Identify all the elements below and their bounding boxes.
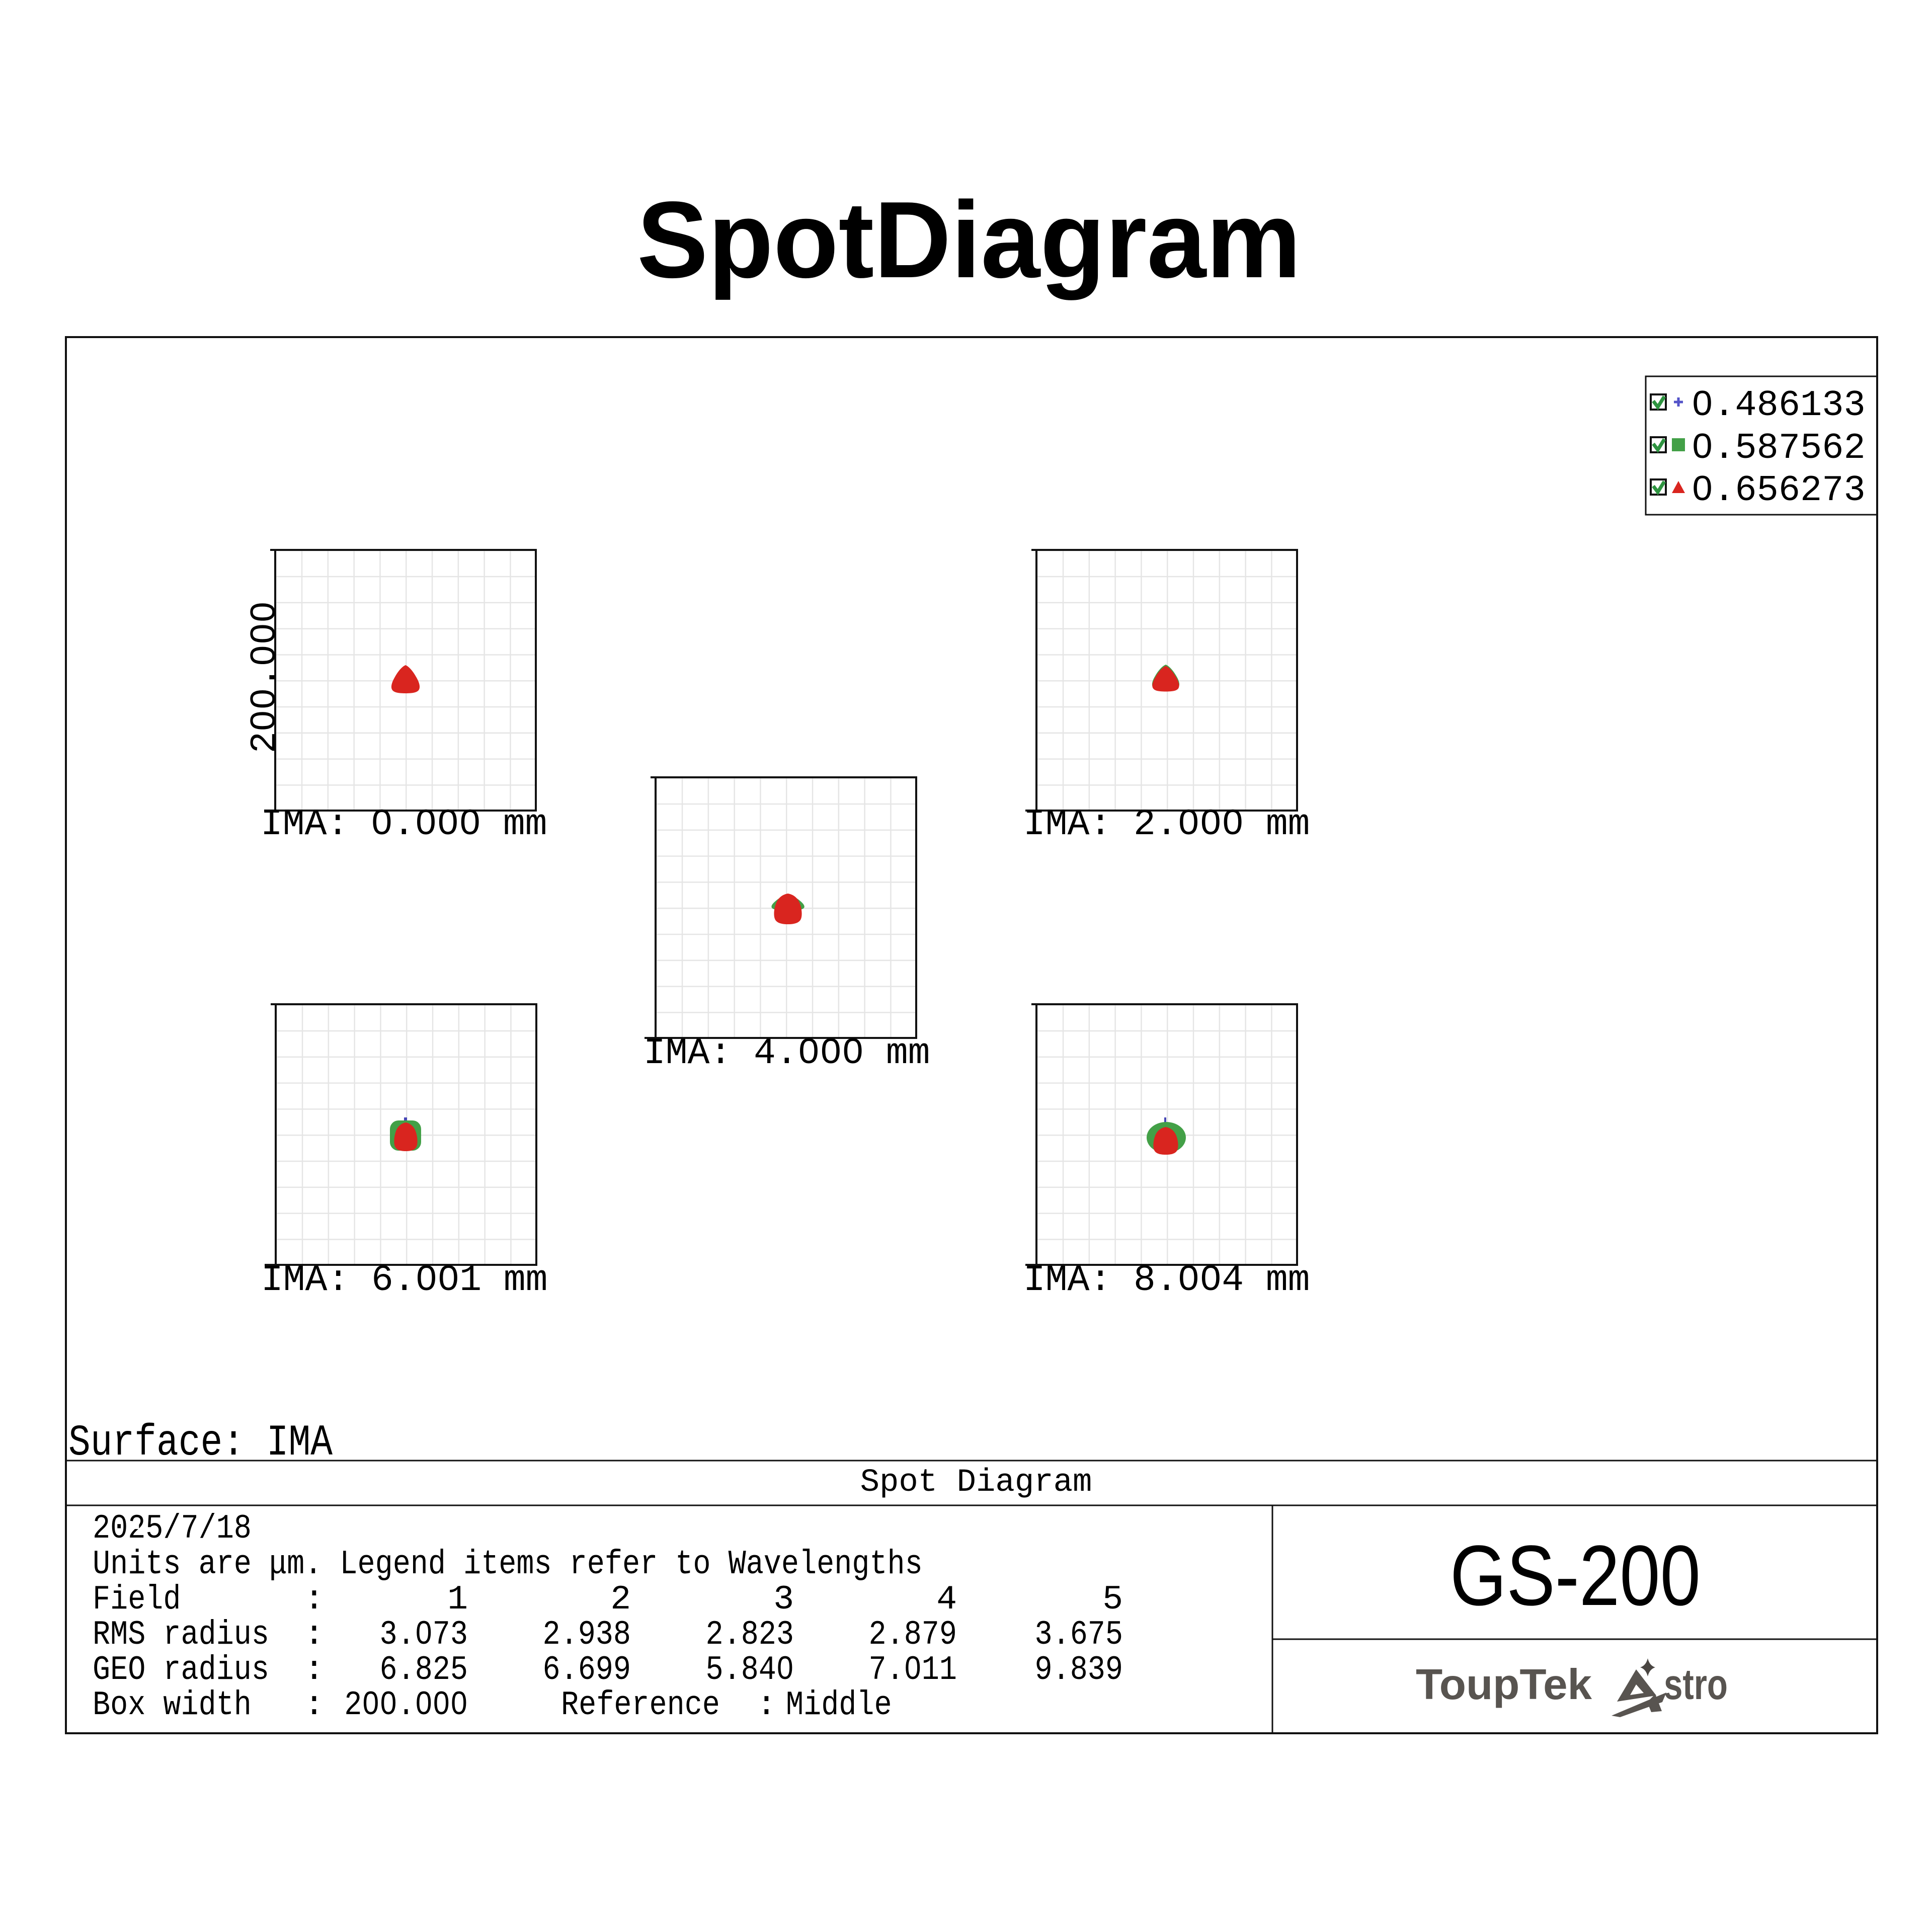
- svg-text:0.656273: 0.656273: [1692, 470, 1866, 511]
- svg-text::: :: [304, 1580, 325, 1619]
- svg-text:6.699: 6.699: [543, 1651, 631, 1689]
- svg-text:4: 4: [936, 1580, 957, 1619]
- svg-text:IMA: 8.004 mm: IMA: 8.004 mm: [1023, 1259, 1310, 1301]
- svg-text:3.675: 3.675: [1035, 1616, 1123, 1654]
- svg-text:2: 2: [610, 1580, 631, 1619]
- svg-text:2025/7/18: 2025/7/18: [93, 1509, 252, 1548]
- svg-text::: :: [756, 1686, 777, 1725]
- svg-text:IMA: 6.001 mm: IMA: 6.001 mm: [261, 1259, 548, 1301]
- svg-text:Spot Diagram: Spot Diagram: [860, 1465, 1092, 1501]
- svg-text:IMA: 0.000 mm: IMA: 0.000 mm: [261, 803, 547, 845]
- svg-text::: :: [304, 1651, 325, 1689]
- svg-text::: :: [304, 1686, 325, 1725]
- svg-text:6.825: 6.825: [380, 1651, 468, 1689]
- svg-text:GS-200: GS-200: [1450, 1528, 1701, 1624]
- svg-text:2.823: 2.823: [706, 1616, 794, 1654]
- svg-text:2.938: 2.938: [543, 1616, 631, 1654]
- svg-text:Box width: Box width: [93, 1686, 252, 1725]
- svg-text:SpotDiagram: SpotDiagram: [637, 179, 1301, 300]
- svg-text:Reference: Reference: [561, 1686, 720, 1725]
- svg-text:IMA: 4.000 mm: IMA: 4.000 mm: [643, 1032, 930, 1074]
- svg-text:ToupTek: ToupTek: [1416, 1661, 1592, 1709]
- svg-text:1: 1: [447, 1580, 468, 1619]
- svg-text:200.000: 200.000: [344, 1686, 468, 1725]
- svg-text:GEO radius: GEO radius: [93, 1651, 269, 1689]
- svg-text:RMS radius: RMS radius: [93, 1616, 269, 1654]
- svg-text:IMA: 2.000 mm: IMA: 2.000 mm: [1023, 803, 1310, 845]
- svg-text:stro: stro: [1664, 1661, 1728, 1709]
- svg-text::: :: [304, 1616, 325, 1654]
- svg-text:Units are μm. Legend items ref: Units are μm. Legend items refer to Wave…: [93, 1545, 923, 1584]
- svg-text:Field: Field: [93, 1580, 181, 1619]
- svg-text:5.840: 5.840: [706, 1651, 794, 1689]
- svg-text:9.839: 9.839: [1035, 1651, 1123, 1689]
- svg-text:Middle: Middle: [786, 1686, 892, 1725]
- svg-text:2.879: 2.879: [869, 1616, 957, 1654]
- svg-text:200.000: 200.000: [245, 601, 286, 753]
- svg-text:3: 3: [773, 1580, 794, 1619]
- svg-text:0.486133: 0.486133: [1692, 385, 1866, 426]
- svg-text:0.587562: 0.587562: [1692, 428, 1866, 469]
- svg-text:5: 5: [1102, 1580, 1123, 1619]
